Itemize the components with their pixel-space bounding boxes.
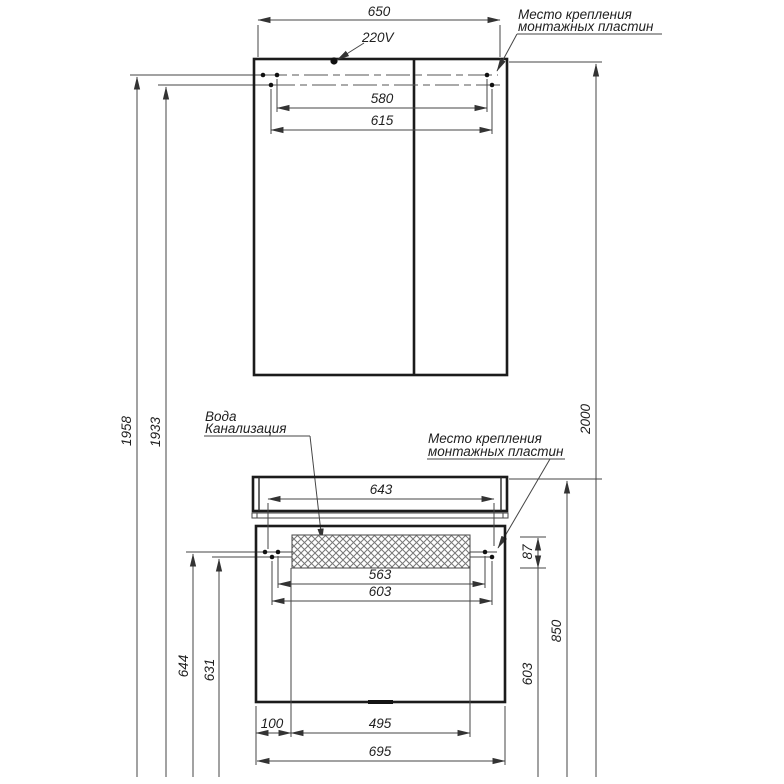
label-power: 220V [361, 30, 396, 45]
dim-plate-offset: 87 [520, 544, 535, 560]
installation-drawing: 1958 1933 644 631 87 603 850 2000 650 58… [0, 0, 784, 784]
vanity-trim-strip [252, 513, 508, 518]
label-sewer: Канализация [205, 421, 286, 436]
mounting-label-top: Место крепления монтажных пластин [497, 7, 662, 71]
drawing-canvas: 1958 1933 644 631 87 603 850 2000 650 58… [0, 0, 784, 784]
dim-height-plate-row-inner: 631 [202, 659, 217, 682]
vanity-unit: 643 563 603 100 495 695 [252, 477, 508, 765]
dim-height-left-inner: 1933 [148, 416, 163, 447]
dim-height-to-plates: 603 [520, 662, 535, 685]
dim-height-right-total: 2000 [578, 403, 593, 435]
mounting-label-top-line2: монтажных пластин [518, 19, 654, 34]
dim-opening-width: 495 [369, 716, 392, 731]
mounting-label-bottom-line2: монтажных пластин [428, 444, 564, 459]
drain-mark [368, 700, 393, 704]
dim-mirror-holes-inner: 580 [371, 91, 394, 106]
dim-vanity-holes-inner: 563 [369, 567, 392, 582]
dim-height-to-top: 850 [549, 619, 564, 642]
dim-bottom-offset: 100 [261, 716, 284, 731]
dim-vanity-bottom-width: 695 [369, 744, 392, 759]
power-point [330, 57, 337, 64]
mounting-label-bottom: Место крепления монтажных пластин [427, 431, 565, 548]
height-dimension-lines: 1958 1933 644 631 87 603 850 2000 [119, 62, 602, 777]
mirror-cabinet-outline [254, 59, 507, 375]
service-opening-hatch [292, 535, 470, 568]
dim-height-plate-row-outer: 644 [176, 655, 191, 678]
dim-vanity-holes-outer: 603 [369, 584, 392, 599]
dim-vanity-top-width: 643 [370, 482, 393, 497]
dim-mirror-width: 650 [368, 4, 391, 19]
water-sewer-label: Вода Канализация [204, 409, 322, 541]
mirror-cabinet: 650 580 615 220V [254, 4, 507, 375]
dim-height-left-outer: 1958 [119, 415, 134, 446]
dim-mirror-holes-outer: 615 [371, 113, 394, 128]
